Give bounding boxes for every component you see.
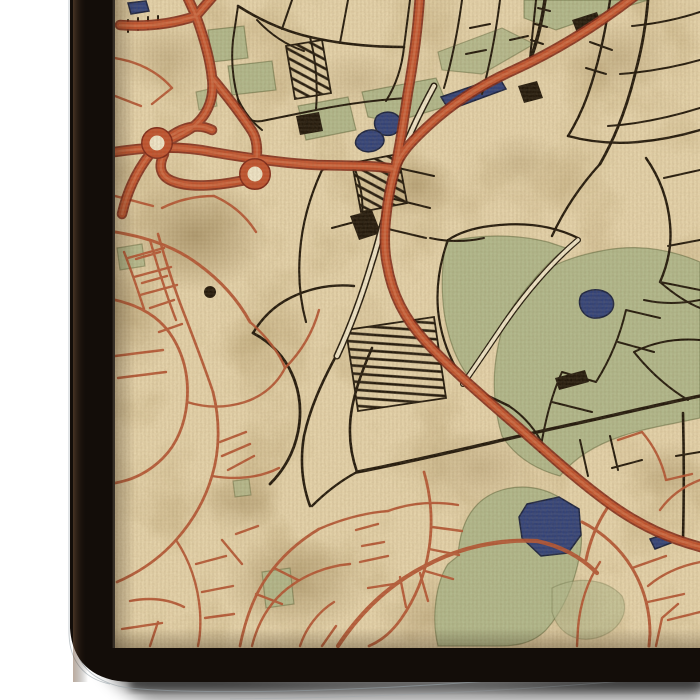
canvas-weave-texture xyxy=(115,0,700,648)
product-mockup-stage xyxy=(0,0,700,700)
face-bottom-shading xyxy=(115,628,700,648)
canvas-fold-seam xyxy=(113,0,115,648)
frame-side-sheen xyxy=(73,0,88,682)
face-left-shading xyxy=(115,0,135,648)
map-face xyxy=(95,0,700,650)
canvas-print-mockup xyxy=(0,0,700,700)
